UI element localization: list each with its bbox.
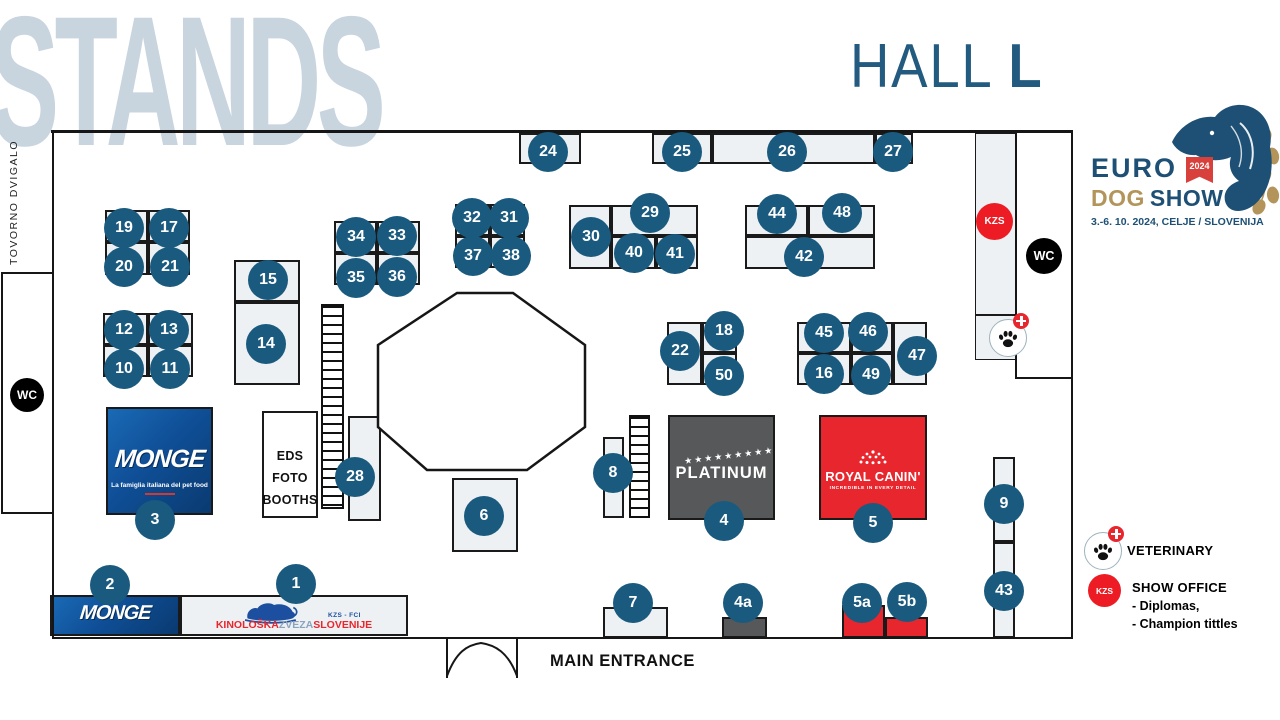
stand-number-badge-15: 15 xyxy=(248,260,288,300)
wall-segment xyxy=(52,637,1074,640)
stand-number-badge-4a: 4a xyxy=(723,583,763,623)
stand-number-badge-44: 44 xyxy=(757,194,797,234)
stand-number-badge-35: 35 xyxy=(336,258,376,298)
stand-number-badge-42: 42 xyxy=(784,237,824,277)
eds-foto-booths-label: EDS FOTO BOOTHS xyxy=(262,446,318,512)
stand-number-badge-14: 14 xyxy=(246,324,286,364)
royal-canin-crown-icon xyxy=(858,450,888,466)
hall-title-letter: L xyxy=(1008,32,1043,101)
legend-veterinary-label: VETERINARY xyxy=(1127,543,1213,558)
stand-number-badge-5b: 5b xyxy=(887,582,927,622)
logo-dog-show-text: DOGSHOW xyxy=(1091,185,1223,212)
red-cross-icon xyxy=(1108,526,1124,542)
stand-number-badge-37: 37 xyxy=(453,236,493,276)
monge-logo-small: MONGE xyxy=(79,602,152,625)
logo-euro-text: EURO xyxy=(1091,153,1177,184)
wall-segment xyxy=(1,512,54,514)
kzs-fci-label: KZS - FCI xyxy=(328,612,361,619)
stand-monge-large: MONGE La famiglia italiana del pet food xyxy=(106,407,213,515)
stand-number-badge-21: 21 xyxy=(150,247,190,287)
stand-number-badge-2: 2 xyxy=(90,565,130,605)
stand-number-badge-49: 49 xyxy=(851,355,891,395)
legend-diplomas-label: - Diplomas, xyxy=(1132,599,1199,613)
platinum-logo: PLATINUM xyxy=(670,464,773,483)
stand-number-badge-30: 30 xyxy=(571,217,611,257)
wall-segment xyxy=(1015,377,1072,379)
stand-number-badge-32: 32 xyxy=(452,198,492,238)
paw-icon xyxy=(996,327,1020,351)
stand-number-badge-6: 6 xyxy=(464,496,504,536)
stand-number-badge-24: 24 xyxy=(528,132,568,172)
stand-number-badge-5a: 5a xyxy=(842,583,882,623)
stand-number-badge-12: 12 xyxy=(104,310,144,350)
stand-number-badge-1: 1 xyxy=(276,564,316,604)
stand-number-badge-5: 5 xyxy=(853,503,893,543)
legend-show-office-label: SHOW OFFICE xyxy=(1132,580,1227,595)
red-cross-icon xyxy=(1013,313,1029,329)
floor-plan-page: STANDS HALL L 24252627191720211213101115… xyxy=(0,0,1280,720)
stand-number-badge-33: 33 xyxy=(377,216,417,256)
stand-number-badge-40: 40 xyxy=(614,233,654,273)
stand-number-badge-28: 28 xyxy=(335,457,375,497)
stand-number-badge-29: 29 xyxy=(630,193,670,233)
legend-veterinary-icon xyxy=(1084,532,1124,570)
stand-number-badge-10: 10 xyxy=(104,349,144,389)
monge-logo: MONGE xyxy=(113,445,206,474)
stand-number-badge-27: 27 xyxy=(873,132,913,172)
stand-number-badge-19: 19 xyxy=(104,208,144,248)
stand-number-badge-47: 47 xyxy=(897,336,937,376)
paw-icon xyxy=(1091,540,1115,564)
stand-number-badge-43: 43 xyxy=(984,571,1024,611)
wall-segment xyxy=(51,130,1073,133)
stand-number-badge-22: 22 xyxy=(660,331,700,371)
kzs-office-badge: KZS xyxy=(976,203,1013,240)
stand-number-badge-46: 46 xyxy=(848,312,888,352)
stand-number-badge-45: 45 xyxy=(804,313,844,353)
hall-title: HALL L xyxy=(850,36,1044,98)
stand-number-badge-26: 26 xyxy=(767,132,807,172)
stands-watermark-title: STANDS xyxy=(0,10,381,154)
stand-number-badge-4: 4 xyxy=(704,501,744,541)
wc-left-badge: WC xyxy=(10,378,44,412)
royal-canin-logo: ROYAL CANIN' xyxy=(821,469,925,484)
stand-number-badge-18: 18 xyxy=(704,311,744,351)
wc-right-badge: WC xyxy=(1026,238,1062,274)
stand-number-badge-36: 36 xyxy=(377,257,417,297)
wall-segment xyxy=(1,272,54,274)
stand-number-badge-13: 13 xyxy=(149,310,189,350)
veterinary-map-icon xyxy=(989,319,1029,357)
stand-number-badge-8: 8 xyxy=(593,453,633,493)
stand-number-badge-38: 38 xyxy=(491,236,531,276)
show-ring-octagon xyxy=(378,293,585,470)
wall-segment xyxy=(1,272,3,514)
stand-number-badge-9: 9 xyxy=(984,484,1024,524)
logo-date-location: 3.-6. 10. 2024, CELJE / SLOVENIJA xyxy=(1091,216,1264,228)
stand-number-badge-25: 25 xyxy=(662,132,702,172)
stand-number-badge-48: 48 xyxy=(822,193,862,233)
kinoloska-zveza-slovenije-label: KINOLOŠKAZVEZASLOVENIJE xyxy=(182,619,406,631)
main-entrance-door xyxy=(447,638,517,678)
stand-number-badge-20: 20 xyxy=(104,247,144,287)
stand-number-badge-34: 34 xyxy=(336,217,376,257)
stand-number-badge-11: 11 xyxy=(150,349,190,389)
wall-segment xyxy=(52,130,55,638)
stand-number-badge-7: 7 xyxy=(613,583,653,623)
stand-number-badge-3: 3 xyxy=(135,500,175,540)
cargo-lift-label: TOVORNO DVIGALO xyxy=(8,140,36,265)
wall-segment xyxy=(1071,130,1074,639)
stand-number-badge-16: 16 xyxy=(804,354,844,394)
legend-champion-label: - Champion tittles xyxy=(1132,617,1238,631)
stand-number-badge-31: 31 xyxy=(489,198,529,238)
hall-title-prefix: HALL xyxy=(850,32,1008,101)
euro-dog-show-logo: EURO 2024 DOGSHOW 3.-6. 10. 2024, CELJE … xyxy=(1085,95,1280,237)
main-entrance-label: MAIN ENTRANCE xyxy=(550,652,695,671)
stand-number-badge-17: 17 xyxy=(149,208,189,248)
stand-number-badge-50: 50 xyxy=(704,356,744,396)
legend-kzs-badge: KZS xyxy=(1088,574,1121,607)
stand-number-badge-41: 41 xyxy=(655,234,695,274)
